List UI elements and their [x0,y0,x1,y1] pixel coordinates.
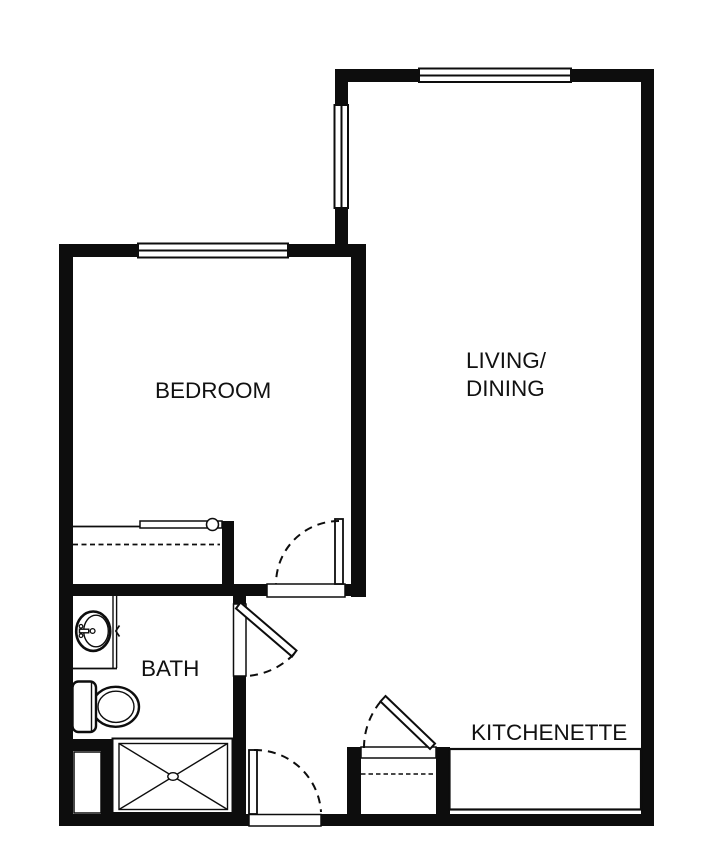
svg-text:DINING: DINING [466,376,545,401]
svg-text:BEDROOM: BEDROOM [155,378,271,403]
svg-text:LIVING/: LIVING/ [466,348,547,373]
svg-text:BATH: BATH [141,656,199,681]
svg-text:KITCHENETTE: KITCHENETTE [471,720,627,745]
